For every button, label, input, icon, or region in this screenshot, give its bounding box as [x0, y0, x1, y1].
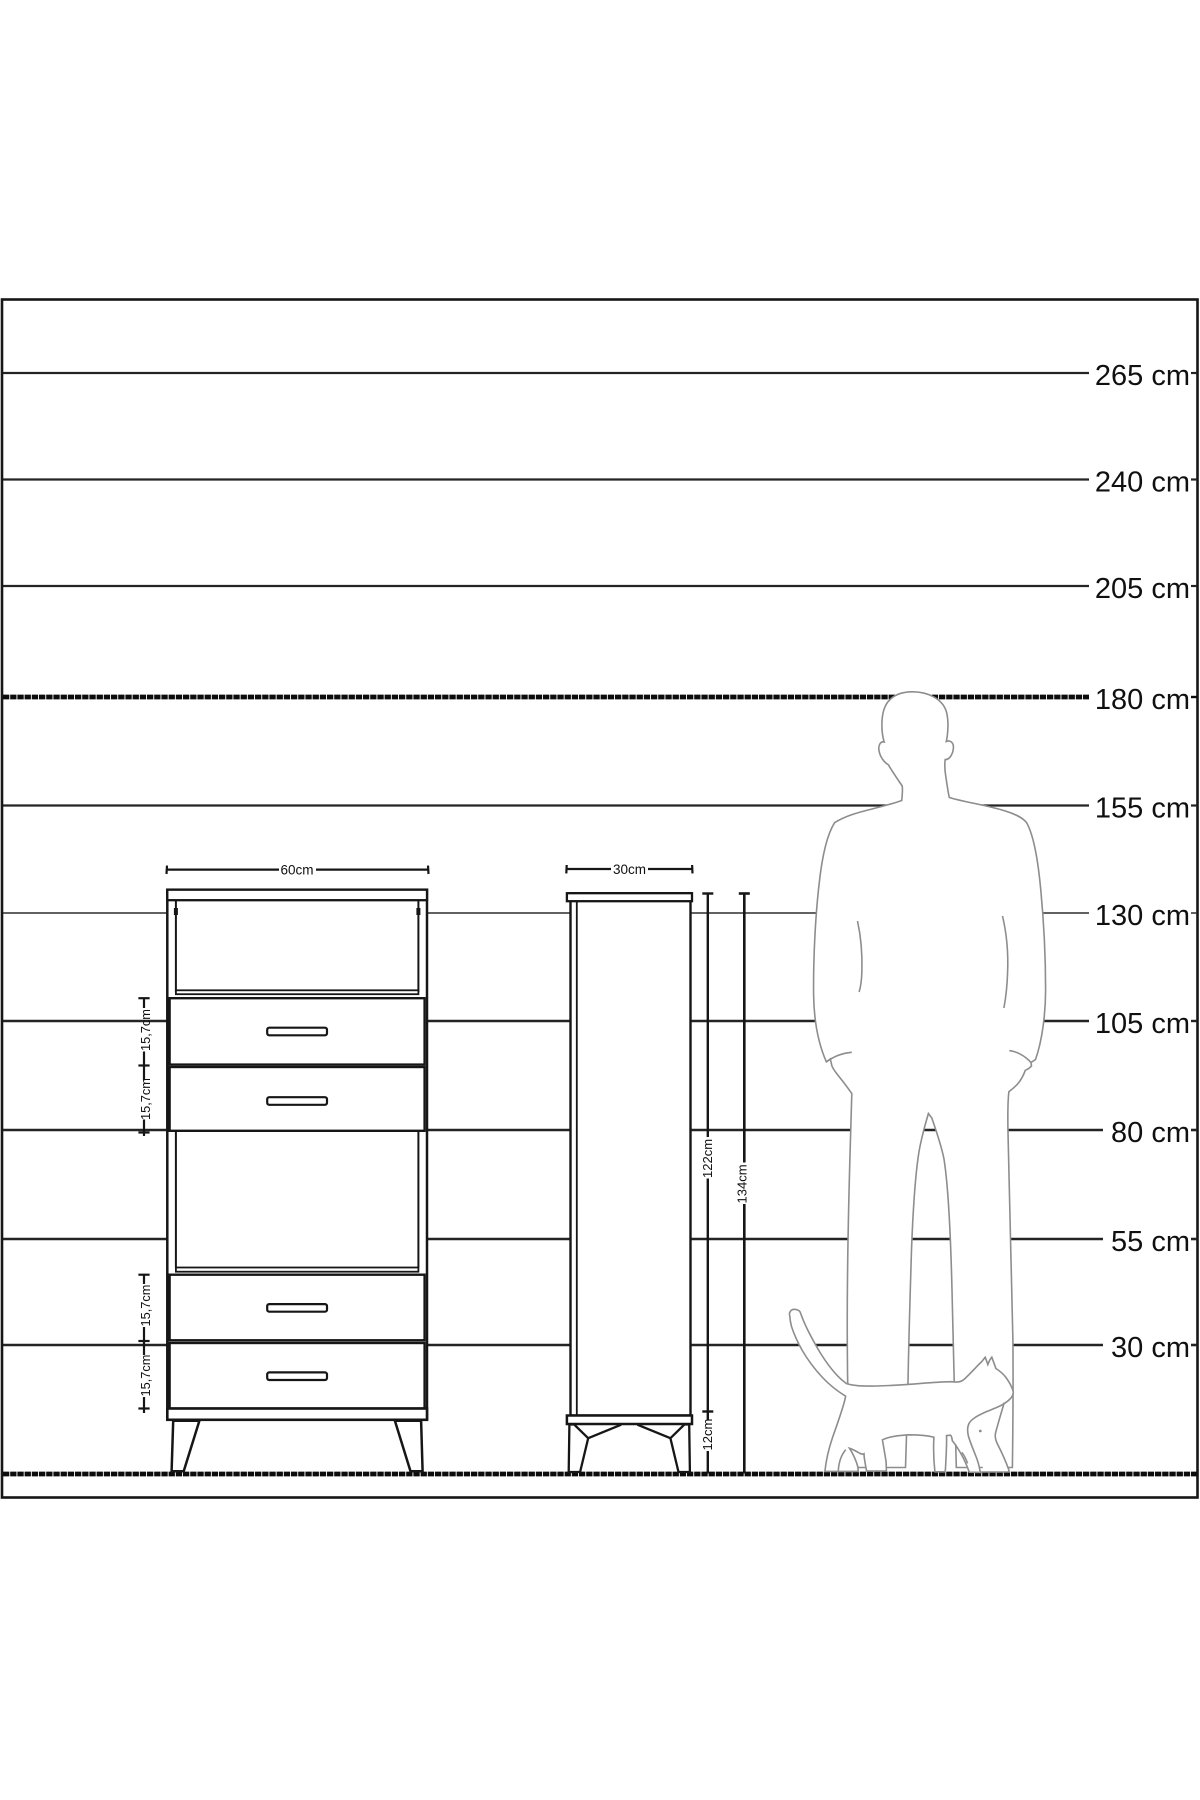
svg-text:15,7cm: 15,7cm — [138, 1009, 153, 1051]
svg-text:30cm: 30cm — [613, 862, 646, 877]
svg-text:15,7cm: 15,7cm — [138, 1285, 153, 1327]
svg-text:130 cm: 130 cm — [1095, 900, 1190, 932]
svg-text:105 cm: 105 cm — [1095, 1008, 1190, 1040]
svg-text:12cm: 12cm — [700, 1419, 715, 1451]
svg-text:205 cm: 205 cm — [1095, 573, 1190, 605]
svg-text:55 cm: 55 cm — [1111, 1226, 1190, 1258]
svg-text:122cm: 122cm — [700, 1139, 715, 1178]
svg-text:265 cm: 265 cm — [1095, 360, 1190, 392]
svg-text:15,7cm: 15,7cm — [138, 1078, 153, 1120]
svg-text:80 cm: 80 cm — [1111, 1117, 1190, 1149]
svg-text:240 cm: 240 cm — [1095, 467, 1190, 499]
svg-text:155 cm: 155 cm — [1095, 793, 1190, 825]
svg-text:134cm: 134cm — [735, 1164, 750, 1203]
svg-text:180 cm: 180 cm — [1095, 684, 1190, 716]
svg-text:30 cm: 30 cm — [1111, 1332, 1190, 1364]
svg-text:60cm: 60cm — [280, 862, 313, 877]
svg-text:15,7cm: 15,7cm — [138, 1355, 153, 1397]
